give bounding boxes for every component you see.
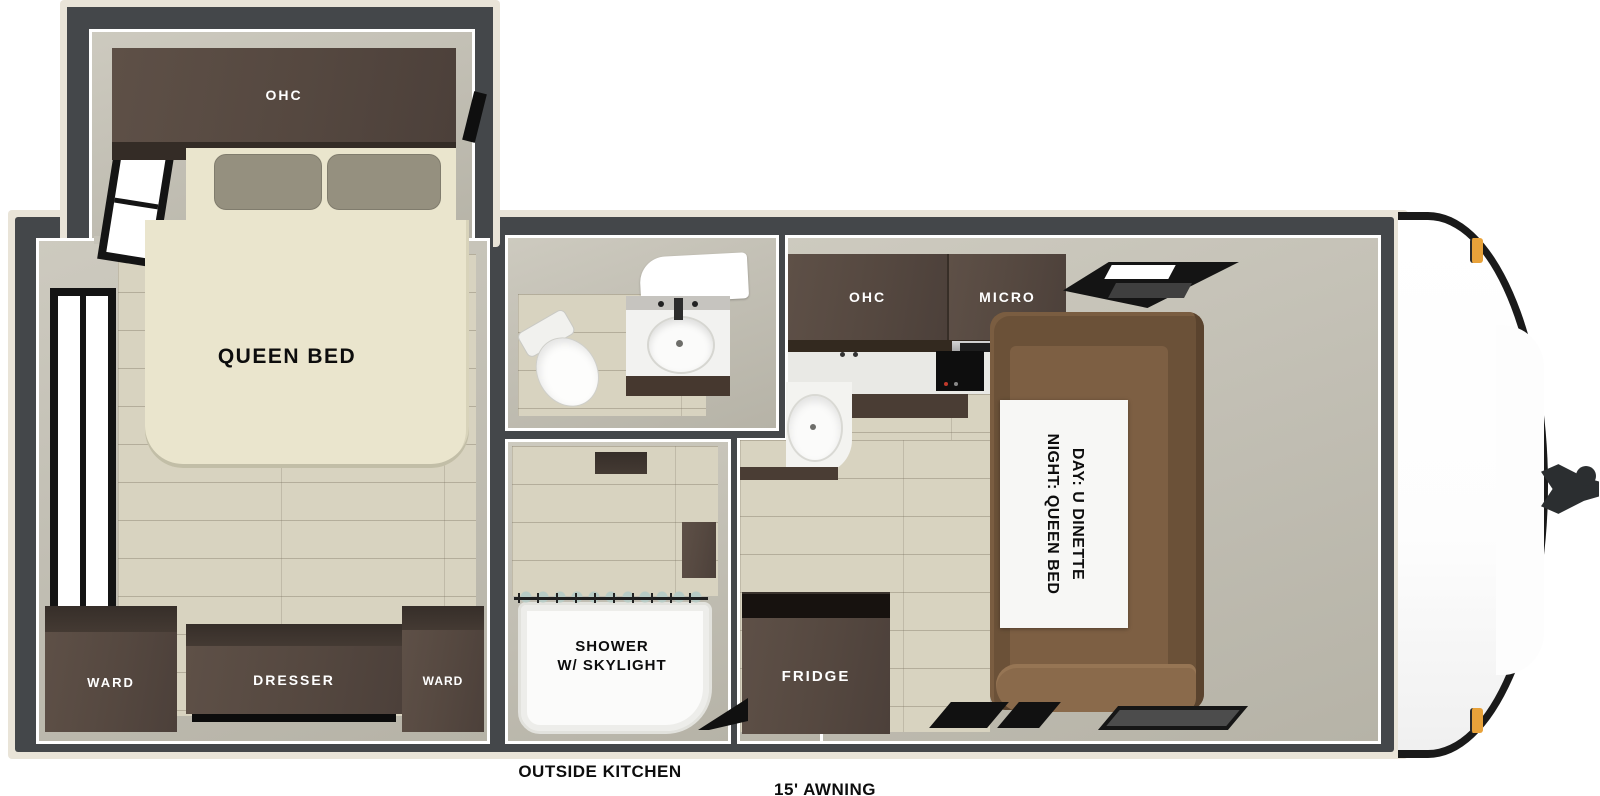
dresser-label: DRESSER	[253, 672, 335, 688]
ward-right-label: WARD	[423, 674, 464, 688]
shower-room-cabinet	[595, 452, 647, 474]
queen-bed-label: QUEEN BED	[157, 345, 417, 369]
bathroom-vanity	[626, 296, 730, 396]
kitchen-under-counter-cabinet	[850, 394, 968, 418]
roof-vent-skylight	[1104, 265, 1175, 279]
queen-bed	[145, 220, 469, 468]
shower-room-linen	[682, 522, 716, 578]
dresser: DRESSER	[186, 624, 402, 714]
wardrobe-right: WARD	[402, 606, 484, 732]
bedroom-overhead-cabinet: OHC	[112, 48, 456, 142]
pillow	[214, 154, 322, 210]
awning-label: 15' AWNING	[735, 780, 915, 796]
dinette-label-panel: DAY: U DINETTE NIGHT: QUEEN BED	[1000, 400, 1128, 628]
front-cap-side	[1496, 325, 1544, 675]
curtain-hooks	[518, 593, 704, 603]
faucet-handle-icon	[853, 352, 858, 357]
floorplan: OHC QUEEN BED WARD DRESSER WARD	[0, 0, 1600, 796]
kitchen-ohc-label: OHC	[849, 289, 886, 305]
wardrobe-left: WARD	[45, 606, 177, 732]
pillow	[327, 154, 441, 210]
shower-label: SHOWER W/ SKYLIGHT	[525, 638, 699, 676]
bedroom-ohc-label: OHC	[265, 87, 302, 103]
fridge-label: FRIDGE	[782, 668, 851, 685]
dinette-label: DAY: U DINETTE NIGHT: QUEEN BED	[1039, 434, 1089, 595]
entry-mat-icon	[1098, 706, 1248, 730]
sink-drain-icon	[810, 424, 816, 430]
outside-kitchen-label: OUTSIDE KITCHEN	[480, 762, 720, 782]
kitchen-counter-return	[740, 467, 838, 480]
roof-vent-lid	[1108, 283, 1192, 298]
marker-light-icon	[1470, 708, 1483, 733]
bedroom-side-window-icon	[50, 288, 116, 626]
faucet-handle-icon	[840, 352, 845, 357]
fridge: FRIDGE	[742, 592, 890, 734]
hitch-coupler-icon	[1576, 466, 1596, 486]
ward-left-label: WARD	[87, 675, 135, 690]
micro-label: MICRO	[979, 289, 1036, 305]
cooktop-icon	[936, 351, 984, 391]
faucet-icon	[674, 298, 683, 320]
marker-light-icon	[1470, 238, 1483, 263]
